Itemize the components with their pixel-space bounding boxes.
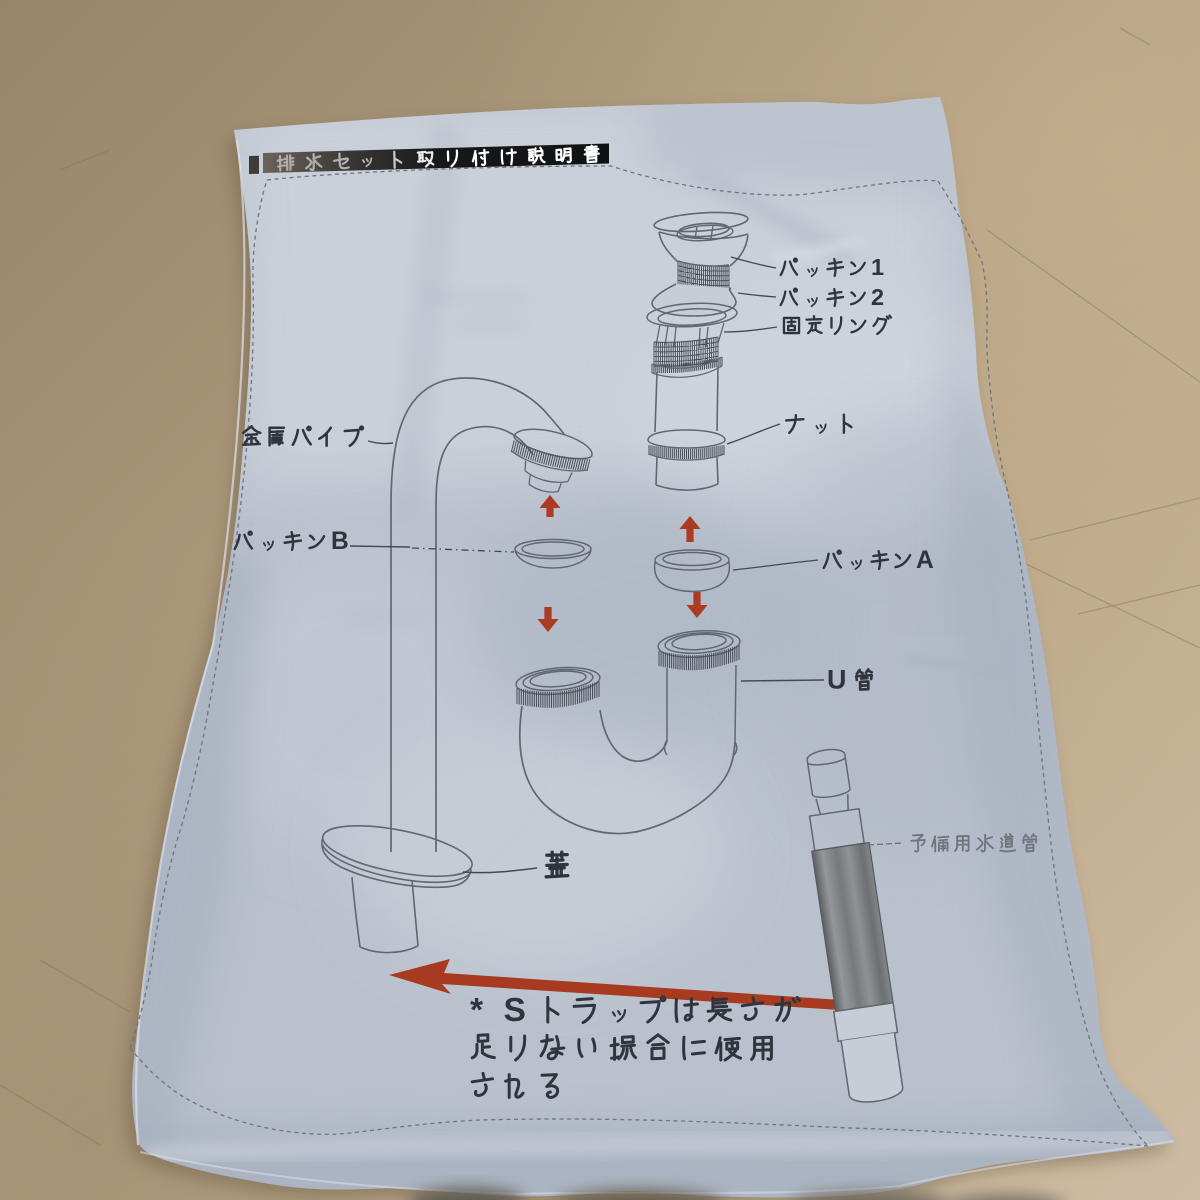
svg-text:S: S	[504, 992, 526, 1029]
svg-text:A: A	[916, 547, 934, 574]
svg-text:1: 1	[871, 254, 884, 280]
svg-text:B: B	[331, 528, 349, 555]
svg-text:U: U	[827, 665, 846, 695]
svg-text:*: *	[470, 992, 484, 1029]
svg-text:2: 2	[871, 284, 884, 310]
